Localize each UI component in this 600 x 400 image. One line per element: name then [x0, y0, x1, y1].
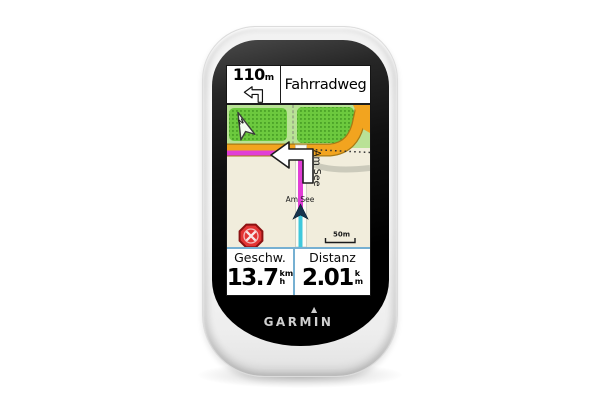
data-field-speed[interactable]: Geschw. 13.7 km h — [227, 249, 295, 295]
data-fields-bar: Geschw. 13.7 km h Distanz 2.01 k m — [227, 247, 370, 295]
data-field-units: km h — [280, 270, 294, 287]
data-field-units: k m — [355, 270, 363, 287]
turn-left-icon — [243, 86, 264, 103]
garmin-delta-icon: ▲ — [311, 305, 317, 314]
data-field-value: 2.01 — [302, 265, 353, 291]
nav-banner[interactable]: 110m Fahrradweg — [227, 66, 370, 105]
device-screen[interactable]: 110m Fahrradweg — [227, 66, 370, 295]
garmin-logo: GARMIN — [227, 315, 370, 329]
map[interactable]: Am See Am See N 50m — [227, 105, 370, 247]
data-field-label: Distanz — [309, 251, 356, 265]
unit-bottom: h — [280, 278, 294, 287]
scale-label: 50m — [333, 231, 350, 239]
nav-distance-value: 110 — [233, 65, 265, 84]
data-field-value: 13.7 — [227, 265, 278, 291]
nav-distance-unit: m — [265, 73, 274, 83]
data-field-distance[interactable]: Distanz 2.01 k m — [295, 249, 370, 295]
nav-instruction-cell[interactable]: Fahrradweg — [281, 66, 370, 103]
unit-bottom: m — [355, 278, 363, 287]
street-label-vertical: Am See — [311, 150, 322, 187]
nav-distance: 110m — [233, 67, 274, 86]
product-photo: 110m Fahrradweg — [0, 0, 600, 400]
street-label-horizontal: Am See — [286, 195, 315, 204]
nav-instruction: Fahrradweg — [285, 77, 367, 93]
nav-turn-cell[interactable]: 110m — [227, 66, 281, 103]
data-field-label: Geschw. — [234, 251, 286, 265]
stop-button[interactable] — [240, 225, 263, 247]
